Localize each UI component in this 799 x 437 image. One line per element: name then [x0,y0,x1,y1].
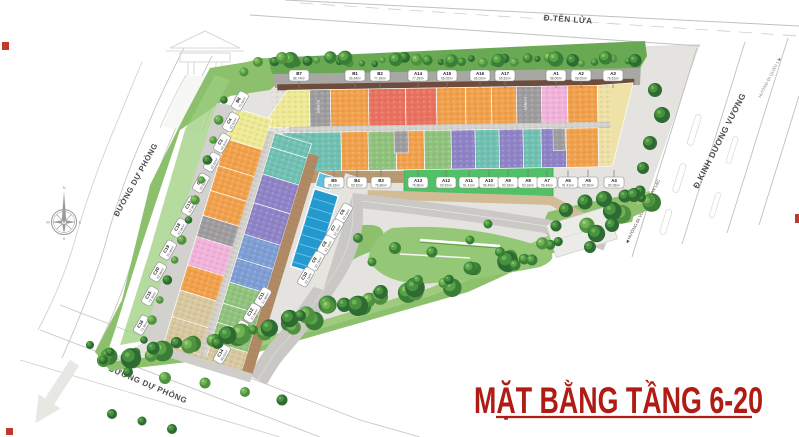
svg-text:76.80m²: 76.80m² [375,183,387,187]
svg-text:65.81m²: 65.81m² [499,76,511,80]
svg-text:A1: A1 [553,71,559,76]
svg-text:B1: B1 [352,71,358,76]
svg-text:S: S [63,236,66,241]
svg-text:A8: A8 [525,178,531,183]
svg-text:A16: A16 [476,71,485,76]
svg-text:A7: A7 [544,178,550,183]
svg-text:51.41m²: 51.41m² [463,183,475,187]
svg-text:77.29m²: 77.29m² [374,76,386,80]
svg-text:66.02m²: 66.02m² [474,76,486,80]
svg-text:A11: A11 [465,178,473,183]
svg-text:76.61m²: 76.61m² [607,76,619,80]
svg-text:SẢNH A: SẢNH A [522,96,527,110]
svg-text:80.35m²: 80.35m² [608,183,620,187]
svg-text:53.16m²: 53.16m² [502,183,514,187]
svg-text:A12: A12 [442,178,451,183]
svg-text:66.02m²: 66.02m² [441,76,453,80]
svg-text:A2: A2 [578,71,584,76]
svg-text:E: E [79,220,82,225]
svg-text:A9: A9 [505,178,511,183]
svg-text:SẢNH B: SẢNH B [316,99,321,113]
svg-text:51.41m²: 51.41m² [562,183,574,187]
svg-text:A14: A14 [414,71,423,76]
svg-text:B2: B2 [377,71,383,76]
svg-text:B4: B4 [354,178,360,183]
svg-text:96.16m²: 96.16m² [328,183,340,187]
svg-text:B5: B5 [331,178,337,183]
svg-text:B7: B7 [296,71,302,76]
svg-text:69.52m²: 69.52m² [351,183,363,187]
svg-text:56.49m²: 56.49m² [483,183,495,187]
svg-text:66.64m²: 66.64m² [349,76,361,80]
svg-text:A13: A13 [414,178,423,183]
svg-text:N: N [63,185,66,190]
svg-text:MẶT BẰNG TẦNG 6-20: MẶT BẰNG TẦNG 6-20 [474,380,763,421]
svg-text:A15: A15 [443,71,452,76]
svg-text:69.50m²: 69.50m² [582,183,594,187]
svg-text:B3: B3 [378,178,384,183]
svg-text:A6: A6 [565,178,571,183]
svg-text:69.52m²: 69.52m² [440,183,452,187]
svg-text:56.49m²: 56.49m² [541,183,553,187]
svg-text:86.74m²: 86.74m² [293,76,305,80]
svg-text:A5: A5 [585,178,591,183]
svg-text:A3: A3 [610,71,616,76]
svg-text:53.16m²: 53.16m² [522,183,534,187]
svg-text:77.29m²: 77.29m² [412,76,424,80]
svg-text:A4: A4 [611,178,617,183]
svg-text:68.02m²: 68.02m² [575,76,587,80]
svg-text:A10: A10 [485,178,494,183]
svg-text:A17: A17 [501,71,510,76]
svg-text:W: W [46,220,50,225]
svg-text:76.80m²: 76.80m² [412,183,424,187]
svg-text:58.00m²: 58.00m² [550,76,562,80]
